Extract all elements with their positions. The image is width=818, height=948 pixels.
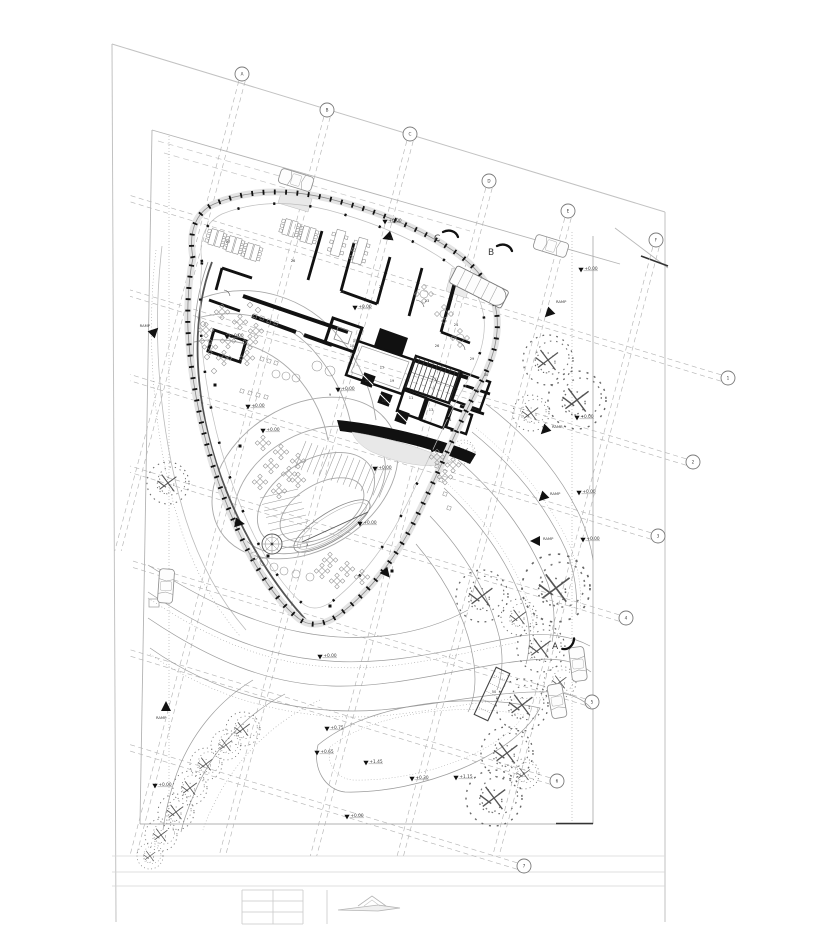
chair: [256, 393, 261, 398]
chair-diamond: [255, 307, 261, 313]
desk-row: [222, 235, 245, 256]
section-letter: C: [434, 234, 440, 244]
chair: [300, 226, 304, 230]
table: [260, 440, 267, 447]
grid-bubble-label: 6: [556, 779, 559, 784]
hatch-line: [264, 502, 302, 511]
meeting-table: [349, 236, 372, 265]
chair: [269, 458, 274, 463]
chair: [258, 252, 262, 256]
desk: [306, 227, 316, 244]
chair: [255, 441, 260, 446]
elevation-marker: +0.00: [260, 427, 280, 433]
terrace-table-set: [252, 474, 268, 490]
ramp-label: RAMP: [556, 300, 567, 304]
elevation-marker: +0.00: [372, 465, 392, 471]
ramp-marker: RAMP: [140, 324, 162, 338]
room-number: 19: [390, 379, 395, 383]
path-curve-dotted: [448, 484, 533, 660]
chair: [297, 236, 301, 240]
terrace-table-set: [354, 569, 370, 585]
ramp-label: RAMP: [140, 324, 151, 328]
tree-canopy: [510, 603, 534, 627]
room-number: 13: [429, 408, 434, 412]
elevation-flag: [363, 761, 368, 766]
grid-line-steep: [219, 141, 407, 856]
site-plan-drawing: ABCDEF1234567: [0, 0, 818, 948]
chair: [320, 563, 325, 568]
chair: [271, 489, 276, 494]
grid-bubble-label: 2: [692, 460, 695, 465]
tree-branches: [563, 388, 589, 411]
terrace-table-set: [232, 314, 248, 330]
north-arrow-icon: [338, 896, 400, 911]
grid-line-shallow: [130, 560, 585, 699]
grid-bubble-label: 5: [591, 700, 594, 705]
room-number: 16: [382, 399, 387, 403]
ramp-arrow-icon: [541, 307, 555, 321]
boundary-top-line: [112, 44, 665, 212]
room-number: 17: [380, 366, 385, 370]
chair: [345, 561, 350, 566]
chair: [223, 233, 227, 237]
chair: [254, 323, 259, 328]
round-seat: [306, 573, 314, 581]
chair: [294, 233, 298, 237]
elevation-value: +0.00: [266, 427, 279, 433]
chair: [252, 480, 257, 485]
chair: [441, 304, 446, 309]
elevation-value: +0.00: [251, 403, 264, 409]
column-dot: [329, 605, 332, 608]
chair: [296, 483, 301, 488]
chair: [241, 253, 245, 257]
round-seat: [272, 370, 280, 378]
table: [257, 479, 264, 486]
chair: [248, 334, 253, 339]
elevation-flag: [382, 220, 387, 225]
tree-branches: [539, 574, 570, 601]
site-plan-sheet: ABCDEF1234567: [0, 0, 818, 948]
car: [533, 234, 570, 258]
elevation-marker: +0.00: [576, 489, 596, 495]
chair: [222, 361, 227, 366]
grid-bubble-label: B: [326, 108, 329, 113]
grid-bubble-label: D: [487, 179, 490, 184]
chair: [269, 469, 274, 474]
chair: [366, 244, 370, 248]
grid-bubble-label: C: [409, 132, 412, 137]
car: [157, 569, 174, 604]
elevation-value: +0.00: [350, 813, 363, 819]
tree: [522, 554, 590, 622]
tree: [158, 794, 194, 830]
elevation-marker: +0.00: [574, 414, 594, 420]
chair: [333, 558, 338, 563]
tree-branches: [509, 695, 532, 716]
chair-diamond: [204, 354, 210, 360]
chair: [297, 223, 301, 227]
chair: [206, 234, 210, 238]
chair: [205, 239, 209, 243]
chair: [240, 389, 245, 394]
elevation-marker: +0.65: [314, 749, 334, 755]
chair: [245, 350, 250, 355]
chair: [263, 480, 268, 485]
ramp-arrow-icon: [537, 424, 551, 438]
chair: [315, 230, 319, 234]
chair: [202, 345, 207, 350]
chair: [332, 232, 336, 236]
chair: [213, 345, 218, 350]
column-dot: [391, 570, 394, 573]
elevation-flag: [317, 655, 322, 660]
tree: [173, 771, 207, 805]
tree: [513, 395, 549, 431]
room-number: 9: [329, 393, 332, 397]
elevation-value: +0.00: [582, 489, 595, 495]
tree-branches: [494, 743, 517, 764]
table: [344, 566, 351, 573]
chair: [277, 494, 282, 499]
elevation-marker: +0.30: [409, 775, 429, 781]
room-number: 50: [475, 389, 480, 393]
grid-line-shallow: [130, 745, 517, 863]
elevation-marker: +0.75: [324, 725, 344, 731]
chair: [360, 580, 365, 585]
round-seat: [325, 366, 335, 376]
elevation-value: +0.00: [586, 536, 599, 542]
tree-canopy: [158, 467, 186, 495]
room-number: 21: [379, 285, 384, 289]
tree-canopy: [235, 716, 257, 738]
car-body: [157, 569, 174, 604]
elevation-flag: [576, 491, 581, 496]
chair: [447, 506, 452, 511]
grid-bubble-label: E: [567, 209, 570, 214]
column-dot: [239, 445, 242, 448]
elevation-marker: +0.00: [317, 653, 337, 659]
tree-canopy: [219, 734, 239, 754]
building-footprint: [182, 190, 497, 626]
tree-canopy: [144, 846, 161, 863]
tree-branches: [158, 475, 177, 492]
tree-branches: [219, 739, 233, 751]
elevation-marker: +1.45: [363, 759, 383, 765]
elevation-value: +0.75: [330, 725, 343, 731]
desk: [288, 220, 298, 237]
elevation-marker: +0.00: [245, 403, 265, 409]
chair: [267, 359, 272, 364]
table: [295, 477, 302, 484]
chair: [335, 573, 340, 578]
column-dot: [214, 384, 217, 387]
chair: [279, 444, 284, 449]
chair: [328, 552, 333, 557]
tree: [509, 759, 539, 789]
ramp-marker: RAMP: [530, 536, 554, 546]
chair: [365, 575, 370, 580]
table: [319, 568, 326, 575]
tree-branches: [469, 586, 492, 607]
chair: [325, 569, 330, 574]
desk-row: [296, 225, 319, 246]
chair: [261, 446, 266, 451]
chair: [264, 395, 269, 400]
room-number: 29: [470, 357, 475, 361]
chair: [312, 240, 316, 244]
column-dot: [451, 429, 454, 432]
room-number: 18: [365, 379, 370, 383]
elevation-flag: [344, 815, 349, 820]
elevation-value: +0.00: [158, 782, 171, 788]
elevation-flag: [314, 751, 319, 756]
tree: [523, 335, 573, 385]
tree-branches: [536, 350, 559, 370]
tree-branches: [529, 638, 551, 657]
column-dot: [267, 555, 270, 558]
table: [244, 355, 251, 362]
chair: [258, 474, 263, 479]
desk: [250, 244, 260, 261]
elevation-flag: [453, 776, 458, 781]
chair: [280, 224, 284, 228]
chair: [282, 219, 286, 223]
table: [327, 557, 334, 564]
elevation-value: +0.00: [378, 465, 391, 471]
chair: [335, 584, 340, 589]
desk-row: [278, 218, 301, 239]
ramp-marker: RAMP: [156, 701, 171, 720]
tree: [456, 570, 508, 622]
chair: [277, 483, 282, 488]
chair: [301, 478, 306, 483]
grid-bubble-label: 7: [523, 864, 526, 869]
tree: [147, 462, 189, 504]
room-number: 23: [425, 299, 430, 303]
tree-branches: [480, 787, 505, 809]
chair: [327, 247, 331, 251]
chair: [245, 361, 250, 366]
grid-bubble-label: 3: [657, 534, 660, 539]
chair: [314, 569, 319, 574]
room-number: 24: [454, 323, 459, 327]
table: [268, 463, 275, 470]
tree: [466, 770, 522, 826]
elevation-value: +0.00: [341, 386, 354, 392]
chair: [320, 574, 325, 579]
chair: [457, 342, 462, 347]
chair: [256, 257, 260, 261]
path-curve: [472, 432, 577, 614]
elevation-marker: +1.15: [453, 774, 473, 780]
path-curve: [458, 460, 554, 642]
chair: [253, 340, 258, 345]
chair: [226, 344, 231, 349]
trees-group: [137, 335, 606, 869]
elevation-marker: +0.00: [344, 813, 364, 819]
tree-branches: [198, 758, 212, 771]
terrace-table-set: [255, 435, 271, 451]
table: [334, 578, 341, 585]
chair: [240, 245, 244, 249]
elevation-flag: [352, 306, 357, 311]
hatch-line: [301, 443, 312, 470]
chair: [208, 229, 212, 233]
grid-bubble-label: 1: [727, 376, 730, 381]
hatch-line: [337, 456, 348, 483]
chair: [222, 350, 227, 355]
chair: [443, 480, 448, 485]
elevation-flag: [578, 268, 583, 273]
chair: [329, 579, 334, 584]
ramp-label: RAMP: [552, 425, 563, 429]
tree-canopy: [563, 378, 601, 416]
chair: [364, 251, 368, 255]
chair: [258, 485, 263, 490]
chair: [443, 492, 448, 497]
chair: [259, 247, 263, 251]
elevation-flag: [324, 727, 329, 732]
chair: [241, 240, 245, 244]
tree-branches: [153, 829, 167, 842]
chair: [279, 455, 284, 460]
chair: [339, 567, 344, 572]
elevation-flag: [260, 429, 265, 434]
title-block-table: [242, 890, 327, 924]
room-number: 27: [226, 240, 231, 244]
car-body: [568, 646, 587, 682]
chair: [296, 228, 300, 232]
chair: [274, 361, 279, 366]
chair: [279, 229, 283, 233]
elevation-value: +0.00: [580, 414, 593, 420]
round-seat: [312, 361, 322, 371]
elevation-value: +0.30: [415, 775, 428, 781]
elevation-value: +1.15: [459, 774, 472, 780]
desk: [232, 237, 242, 254]
room-number: 50: [492, 690, 497, 694]
room-number: 11: [409, 396, 414, 400]
elevation-value: +0.00: [358, 304, 371, 310]
section-arrow-curve: [497, 245, 512, 251]
desk-row: [240, 242, 263, 263]
hatch-line: [270, 522, 308, 531]
chair: [223, 246, 227, 250]
elevation-flag: [409, 777, 414, 782]
chair: [254, 334, 259, 339]
chair: [322, 558, 327, 563]
chair: [263, 464, 268, 469]
chair: [243, 320, 248, 325]
hatch-line: [343, 458, 354, 485]
chair: [242, 248, 246, 252]
chair: [456, 463, 461, 468]
grid-bubble-label: 4: [625, 616, 628, 621]
path-curve: [148, 618, 591, 686]
section-letter: A: [552, 642, 559, 652]
chair: [345, 572, 350, 577]
elevation-marker: +0.00: [580, 536, 600, 542]
round-seat: [282, 372, 290, 380]
chair: [354, 240, 358, 244]
elevation-flag: [152, 784, 157, 789]
elevation-marker: +0.00: [352, 304, 372, 310]
chair: [266, 441, 271, 446]
path-curve-dotted: [476, 428, 581, 610]
elevation-marker: +0.00: [578, 266, 598, 272]
elevation-flag: [574, 416, 579, 421]
desk: [214, 230, 224, 247]
ramp-marker: RAMP: [537, 424, 563, 438]
terrace-table-set: [271, 483, 287, 499]
room-number: 10: [350, 344, 355, 348]
chair: [273, 450, 278, 455]
elevation-value: +0.00: [388, 218, 401, 224]
chair: [314, 235, 318, 239]
tree-canopy: [510, 685, 544, 719]
chair: [342, 243, 346, 247]
chair: [274, 464, 279, 469]
ramp-label: RAMP: [550, 492, 561, 496]
elevation-flag: [580, 538, 585, 543]
ramp-arrow-icon: [535, 491, 549, 505]
chair: [362, 259, 366, 263]
tree-branches: [167, 805, 183, 819]
tree: [211, 730, 241, 760]
chair: [340, 579, 345, 584]
round-seat: [280, 567, 288, 575]
terrace-curve: [194, 340, 328, 440]
ramp-arrow-icon: [530, 536, 540, 546]
chair: [439, 478, 444, 483]
grid-line-steep: [121, 81, 245, 551]
chair: [290, 459, 295, 464]
section-letter: B: [488, 248, 494, 258]
chair: [330, 240, 334, 244]
chair: [204, 333, 209, 338]
chair: [220, 243, 224, 247]
tree-canopy: [470, 576, 504, 610]
chair: [340, 251, 344, 255]
terrace-table-set: [339, 561, 355, 577]
tree-branches: [510, 610, 526, 624]
car-body: [547, 683, 568, 719]
meeting-table: [327, 228, 350, 257]
chair: [238, 250, 242, 254]
room-number: 14: [447, 418, 452, 422]
chair-diamond: [247, 302, 253, 308]
stair-rail: [411, 372, 455, 387]
room-number: 26: [435, 344, 440, 348]
section-marker: B: [488, 245, 512, 258]
elevation-value: +0.00: [363, 520, 376, 526]
room-number: 25: [388, 237, 393, 241]
room-number: 22: [340, 290, 345, 294]
elevation-value: +0.00: [323, 653, 336, 659]
car-body: [533, 234, 570, 258]
section-arrow-curve: [443, 231, 458, 237]
hatch-line: [379, 470, 390, 497]
chair: [261, 435, 266, 440]
compass-detail: [262, 534, 282, 554]
hatch-line: [331, 454, 342, 481]
chair: [354, 575, 359, 580]
tree-canopy: [198, 752, 219, 773]
chair: [344, 236, 348, 240]
elevation-value: +0.00: [584, 266, 597, 272]
hatch-line: [313, 447, 324, 474]
